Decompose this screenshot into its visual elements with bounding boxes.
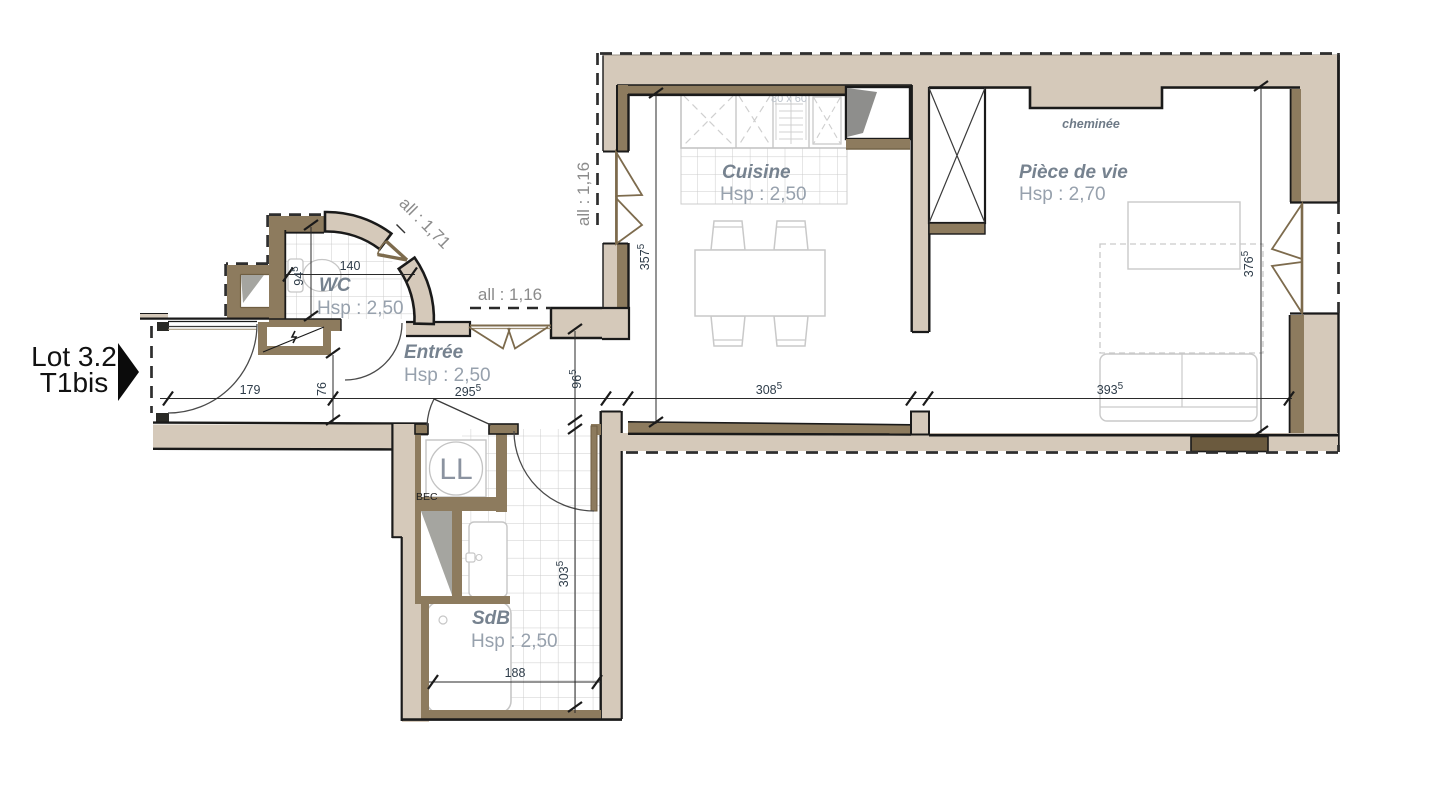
svg-text:Entrée: Entrée: [404, 342, 464, 363]
svg-text:188: 188: [505, 666, 526, 680]
svg-text:76: 76: [315, 382, 329, 396]
svg-text:Pièce de vie: Pièce de vie: [1019, 162, 1128, 183]
svg-text:Cuisine: Cuisine: [722, 162, 791, 183]
svg-text:all : 1,16: all : 1,16: [574, 162, 593, 226]
svg-text:Hsp : 2,50: Hsp : 2,50: [317, 298, 404, 319]
svg-text:Hsp : 2,50: Hsp : 2,50: [720, 184, 807, 205]
svg-text:WC: WC: [319, 275, 351, 296]
svg-text:Hsp : 2,70: Hsp : 2,70: [1019, 184, 1106, 205]
svg-text:179: 179: [240, 383, 261, 397]
svg-text:BEC: BEC: [416, 491, 438, 503]
svg-text:LL: LL: [439, 453, 472, 486]
svg-text:cheminée: cheminée: [1062, 117, 1120, 131]
svg-text:SdB: SdB: [472, 608, 510, 629]
svg-text:Hsp : 2,50: Hsp : 2,50: [471, 631, 558, 652]
svg-text:all : 1,16: all : 1,16: [478, 285, 542, 304]
svg-text:Hsp : 2,50: Hsp : 2,50: [404, 365, 491, 386]
svg-text:T1bis: T1bis: [40, 367, 108, 398]
svg-text:140: 140: [340, 259, 361, 273]
